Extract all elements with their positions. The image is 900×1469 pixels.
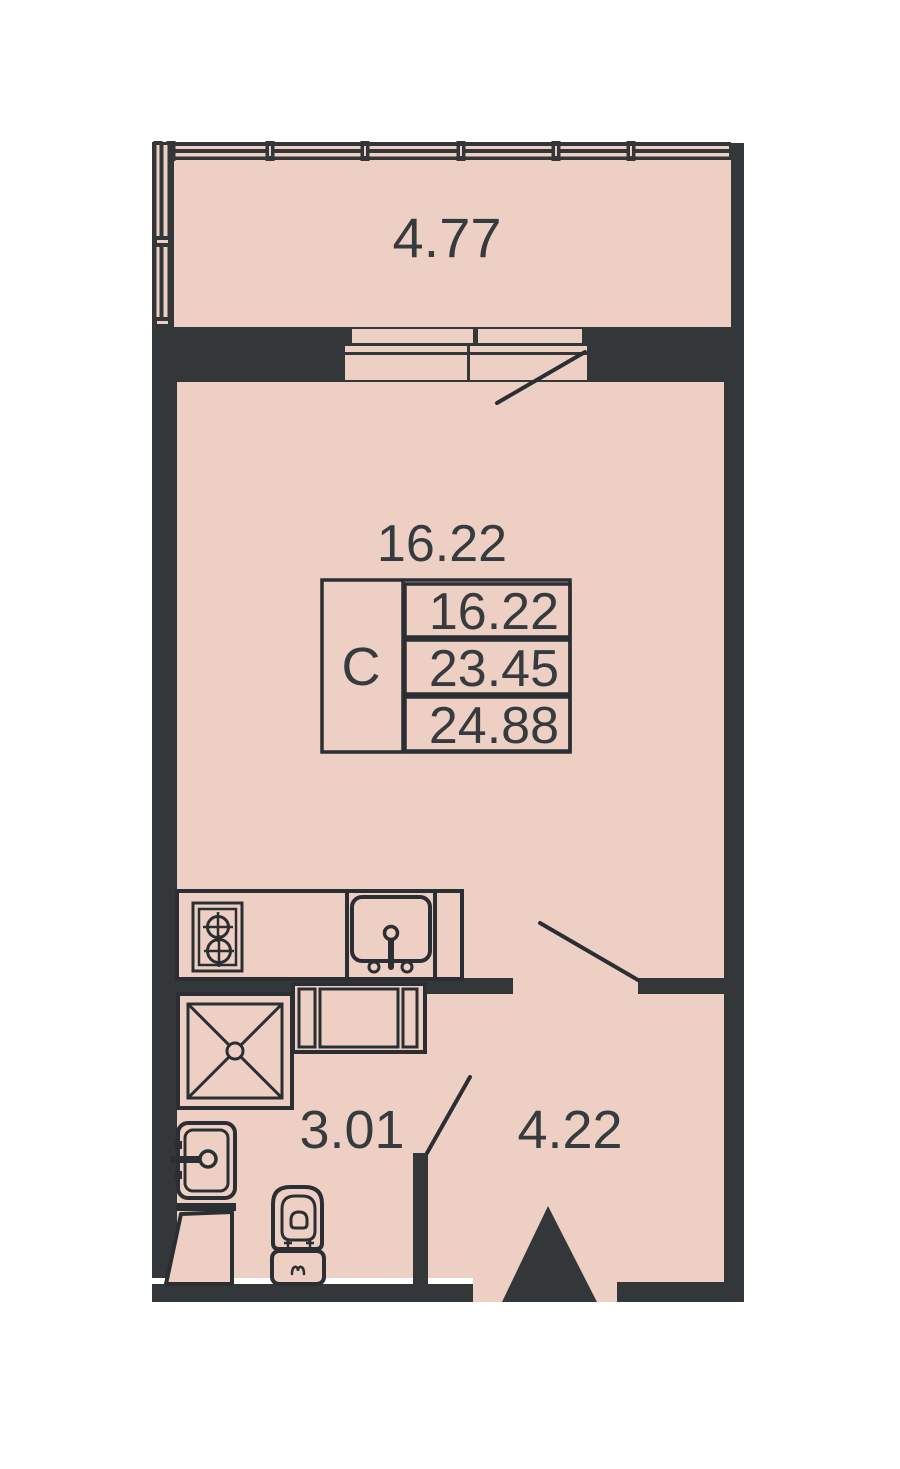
info-row-living-area: 16.22 [429,583,559,641]
bathroom-area-label: 3.01 [299,1100,404,1160]
shower-drain [227,1043,243,1059]
wall-room-hall [638,978,724,994]
balcony-area-label: 4.77 [393,206,502,269]
window-mullion-slit [157,321,168,324]
washing-machine [293,984,425,1052]
window-glass-line [154,153,729,157]
shower [178,994,292,1108]
floor-gap [428,1278,473,1284]
wash-basin [170,1123,235,1198]
info-row-total-area: 24.88 [429,697,559,755]
balcony-window-top [152,141,731,161]
hall-area-label: 4.22 [517,1100,622,1160]
room-area-label: 16.22 [377,515,507,573]
window-frame [152,142,731,160]
wall-bottom-right [617,1282,744,1302]
wall-bath-hall-stub [413,1153,428,1302]
basin-faucet-head [200,1151,216,1167]
balcony-sill-left [352,329,473,343]
balcony-sill-right [478,329,582,343]
faucet-head [385,927,398,940]
wall-right-balcony [731,143,744,327]
toilet [272,1187,324,1284]
wall-left [152,327,177,1278]
apartment-type-label: С [342,637,381,697]
basin-handle [175,1141,182,1149]
window-mullion-slit [157,240,168,243]
info-row-area: 23.45 [429,640,559,698]
sink-tap [369,962,379,972]
kitchen-sink [352,897,430,972]
sink-tap [402,962,412,972]
window-pane [345,355,467,380]
wall-bottom-left [152,1284,473,1302]
kitchen-counter [177,891,462,979]
wall-right [724,327,744,1302]
window-glass-line [154,146,729,149]
balcony-window-left [152,142,174,330]
floorplan-drawing: С 16.22 23.45 24.88 4.77 16.22 3.01 4.22 [0,0,900,1469]
floorplan-canvas: С 16.22 23.45 24.88 4.77 16.22 3.01 4.22 [0,0,900,1469]
basin-handle [175,1171,182,1179]
balcony-door-pane [470,346,587,352]
door-header [176,1203,236,1211]
window-pane [345,346,467,352]
